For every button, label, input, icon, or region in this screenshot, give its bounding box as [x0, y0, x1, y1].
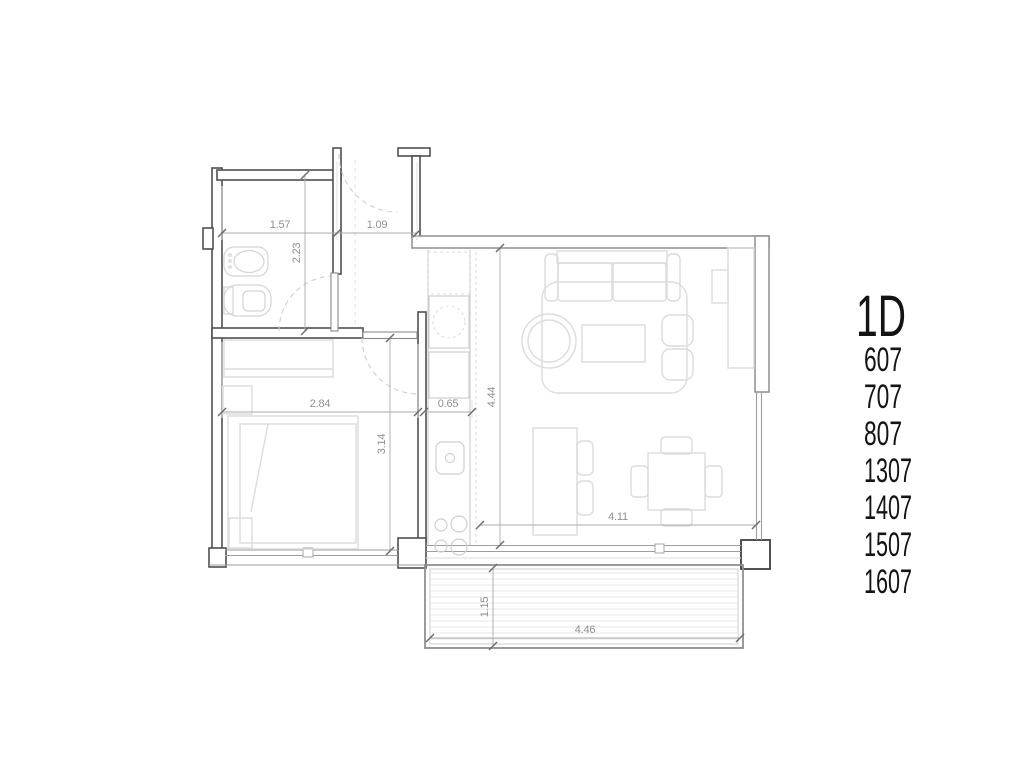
washing-machine: [429, 296, 469, 348]
coffee-table: [582, 325, 645, 362]
sofa-armrest: [667, 254, 680, 301]
floor-plan-page: 1.57 1.09 2.23 2.84 0.65 4.44 3.14 4.11 …: [0, 0, 1024, 768]
dimensions: 1.57 1.09 2.23 2.84 0.65 4.44 3.14 4.11 …: [218, 162, 760, 650]
wall-living-right: [755, 236, 769, 392]
dim-label-kitchen-width: 0.65: [438, 398, 459, 410]
wardrobe: [224, 340, 333, 377]
unit-number: 1507: [864, 526, 912, 564]
unit-number: 1607: [864, 563, 912, 601]
round-side-table: [528, 320, 570, 362]
unit-number: 807: [864, 415, 902, 453]
desk-chair: [577, 441, 593, 475]
sofa-armrest: [545, 254, 558, 301]
sink-tap: [229, 260, 231, 262]
wall-entry-top: [398, 148, 430, 156]
kitchen-cabinet: [429, 352, 469, 398]
unit-number: 607: [864, 341, 902, 379]
pouf: [662, 315, 693, 346]
column: [741, 540, 770, 569]
living-room: [522, 248, 754, 535]
bed-duvet: [240, 424, 356, 543]
sink-tap: [229, 254, 231, 256]
nightstand: [223, 386, 252, 414]
dim-label-entry-width: 1.09: [367, 219, 388, 231]
pouf: [662, 349, 693, 380]
windows: [209, 392, 762, 565]
wall-living-top: [412, 236, 769, 248]
wall-entry-right: [412, 156, 420, 237]
unit-number: 1407: [864, 489, 912, 527]
dim-label-bedroom-width: 2.84: [310, 398, 331, 410]
dim-label-bath-width: 1.57: [270, 219, 291, 231]
bedroom: [223, 340, 358, 549]
dim-label-balcony-depth: 1.15: [479, 597, 491, 618]
kitchen-upper-cabinet: [428, 252, 470, 294]
bed: [228, 416, 358, 549]
dining-chair: [661, 509, 692, 526]
dim-label-balcony-width: 4.46: [575, 624, 596, 636]
bathroom: [224, 247, 271, 316]
desk: [533, 428, 577, 535]
wall-kitchen: [418, 312, 426, 542]
unit-number: 707: [864, 378, 902, 416]
wall-left: [212, 168, 222, 552]
dim-label-living-depth: 4.44: [486, 387, 498, 408]
dining-chair: [705, 466, 722, 497]
washing-machine-drum: [433, 306, 465, 338]
floor-plan-svg: 1.57 1.09 2.23 2.84 0.65 4.44 3.14 4.11 …: [0, 0, 1024, 768]
sink-tap: [229, 266, 231, 268]
toilet-bowl: [243, 291, 265, 311]
cooktop-burner: [435, 519, 447, 531]
dim-label-bath-depth: 2.23: [291, 243, 303, 264]
bathroom-sink-basin: [234, 251, 264, 273]
dining-chair: [661, 437, 692, 454]
unit-label-block: 1D 607 707 807 1307 1407 1507 1607: [856, 284, 912, 601]
bed-fold-line: [251, 424, 268, 512]
wall-bedroom-top: [212, 328, 363, 338]
cooktop-burner: [451, 539, 467, 555]
bathroom-door-leaf: [331, 273, 338, 331]
unit-number: 1307: [864, 452, 912, 490]
wall-left-notch: [203, 228, 213, 249]
window-marker: [655, 544, 664, 553]
tv: [712, 270, 728, 303]
unit-type-label: 1D: [856, 284, 906, 349]
tv-console: [728, 248, 754, 368]
cooktop-burner: [451, 516, 467, 532]
desk-chair: [577, 481, 593, 515]
sofa-back: [557, 251, 667, 263]
bathroom-door-arc: [279, 276, 334, 331]
dim-label-bedroom-depth: 3.14: [376, 434, 388, 455]
round-side-table: [522, 314, 576, 368]
walls: [203, 148, 770, 569]
wall-kitchen-step: [398, 538, 426, 568]
dining-chair: [631, 466, 648, 497]
dim-label-living-width: 4.11: [608, 511, 628, 523]
kitchen-sink-drain: [446, 454, 455, 463]
wall-corner-block: [209, 548, 226, 567]
kitchen-sink: [436, 442, 464, 474]
doors: [279, 154, 418, 394]
dining-table: [648, 453, 705, 510]
wall-bathroom-top: [217, 170, 341, 180]
entry-door-arc: [339, 154, 397, 212]
